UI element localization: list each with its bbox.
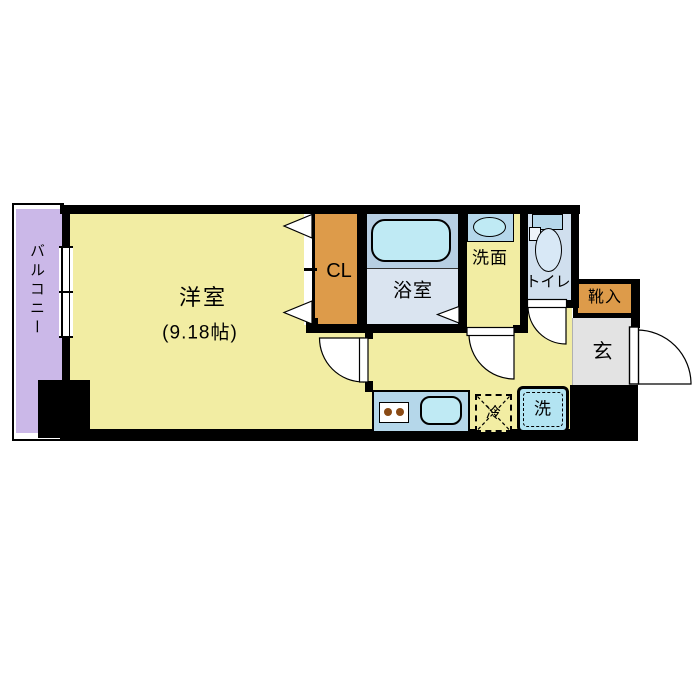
washer-label: 洗 <box>534 401 552 418</box>
entrance-door-arc <box>637 330 691 384</box>
entrance-door-leaf <box>630 327 639 384</box>
balcony-label: バルコニー <box>29 243 44 338</box>
fridge-label: 冷 <box>486 406 502 421</box>
washroom-door-arc <box>469 334 514 379</box>
main-room-door-leaf <box>360 338 369 382</box>
toilet-door-leaf <box>528 300 567 308</box>
closet-door-triangle-icon <box>284 301 312 324</box>
main-room-door-arc <box>320 338 364 382</box>
main-room-label: 洋室 <box>179 287 227 309</box>
toilet-label: トイレ <box>525 275 570 290</box>
closet-label: CL <box>326 261 352 281</box>
toilet-door-arc <box>528 306 566 344</box>
bathroom-label: 浴室 <box>393 282 433 301</box>
main-room-size-label: (9.18帖) <box>162 324 238 343</box>
washroom-door-leaf <box>467 328 514 336</box>
entrance-label: 玄 <box>593 342 614 362</box>
shoe-box-label: 靴入 <box>588 290 622 306</box>
floorplan-canvas: バルコニー 洋室 (9.18帖) CL 浴室 洗面 トイレ 靴入 玄 冷 洗 <box>0 0 700 700</box>
washroom-label: 洗面 <box>472 250 508 267</box>
bathroom-door-triangle-icon <box>438 307 460 324</box>
closet-door-triangle-icon <box>284 215 312 239</box>
